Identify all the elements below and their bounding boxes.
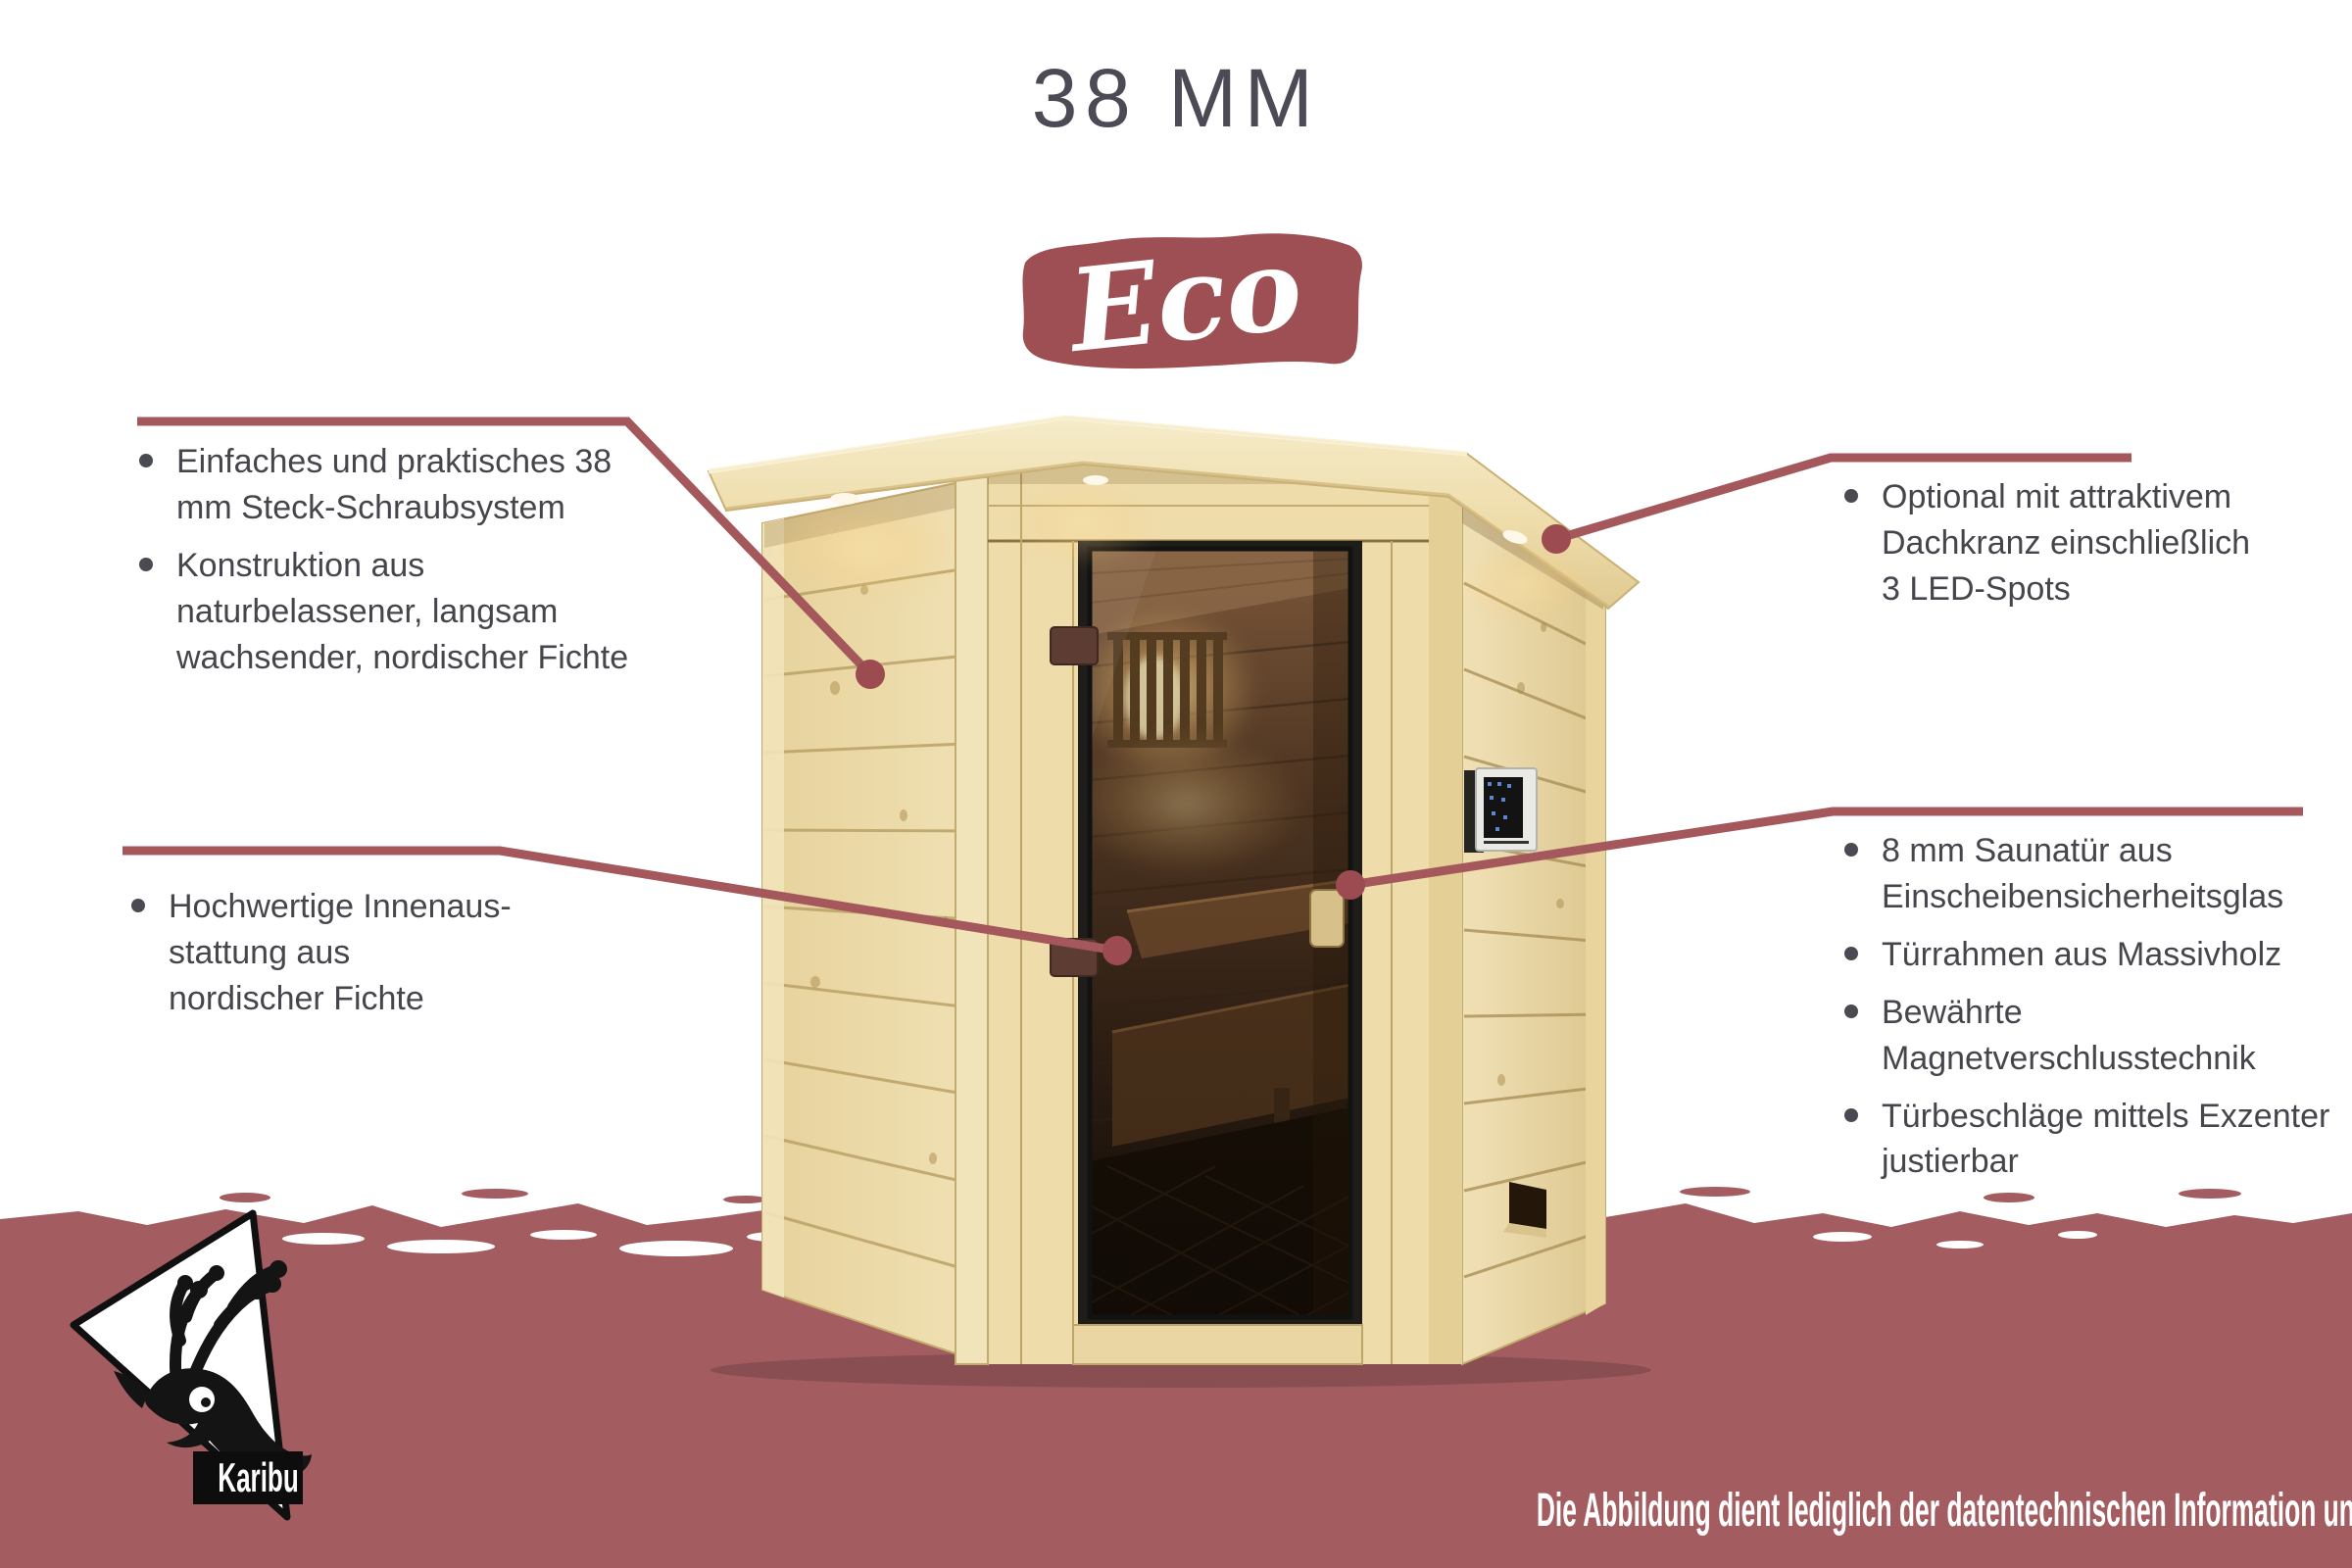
sauna-door-front <box>955 461 1462 1364</box>
callout-right-top: Optional mit attraktivem Dachkranz einsc… <box>1842 474 2254 624</box>
sauna-right-wall <box>1462 496 1605 1364</box>
vent-opening <box>1503 1182 1546 1238</box>
sauna-interior-view <box>1068 549 1350 1317</box>
footer-disclaimer: Die Abbildung dient lediglich der datent… <box>990 1482 2342 1541</box>
feature-item: Optional mit attraktivem Dachkranz einsc… <box>1842 474 2254 612</box>
karibu-wordmark: Karibu <box>193 1451 303 1504</box>
page-title: 38 MM <box>0 57 2352 139</box>
sauna-control-panel <box>1464 768 1537 853</box>
feature-item: Türrahmen aus Massivholz <box>1842 932 2352 978</box>
feature-item: Hochwertige Innenaus-stattung aus nordis… <box>129 884 512 1022</box>
feature-item: Einfaches und praktisches 38 mm Steck-Sc… <box>137 439 671 531</box>
feature-item: 8 mm Saunatür aus Einscheibensicherheits… <box>1842 828 2352 920</box>
led-spot-icon <box>1083 475 1108 485</box>
footer-disclaimer-text: Die Abbildung dient lediglich der datent… <box>1537 1482 2352 1541</box>
karibu-wordmark-text: Karibu <box>218 1451 298 1504</box>
callout-left-bottom: Hochwertige Innenaus-stattung aus nordis… <box>129 884 512 1034</box>
door-handle <box>1310 890 1344 947</box>
sauna-glass-door <box>1068 541 1362 1325</box>
infographic-canvas: 38 MM Eco Einfaches und praktisches 38 m… <box>0 0 2352 1568</box>
callout-left-top: Einfaches und praktisches 38 mm Steck-Sc… <box>137 439 671 693</box>
eco-badge-label: Eco <box>1042 218 1329 383</box>
sauna-illustration <box>709 417 1639 1364</box>
led-spot-icon <box>830 493 859 505</box>
feature-item: Türbeschläge mittels Exzenter justierbar <box>1842 1094 2352 1186</box>
callout-right-middle: 8 mm Saunatür aus Einscheibensicherheits… <box>1842 828 2352 1197</box>
feature-item: Konstruktion aus naturbelassener, langsa… <box>137 543 671 681</box>
feature-item: Bewährte Magnetverschlusstechnik <box>1842 990 2352 1082</box>
